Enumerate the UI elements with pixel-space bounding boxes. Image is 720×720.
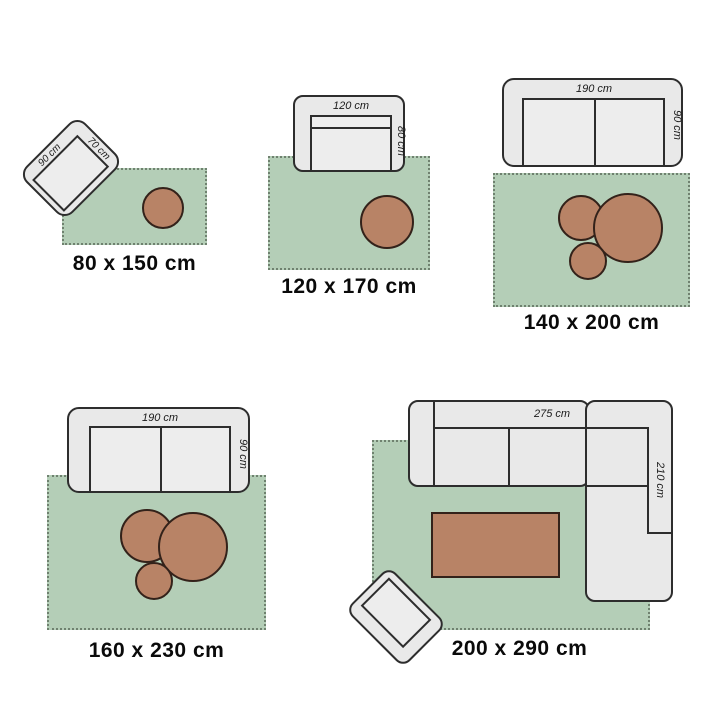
rug-size-label: 200 x 290 cm	[432, 636, 607, 662]
rug-size-label: 140 x 200 cm	[493, 310, 690, 336]
round-table-small	[135, 562, 173, 600]
rug-size-label: 80 x 150 cm	[62, 251, 207, 277]
seat-divider-line	[160, 426, 162, 493]
sofa-seat	[89, 426, 231, 491]
rug-size-guide: 70 cm 90 cm 80 x 150 cm 120 cm 80 cm 120…	[0, 0, 720, 720]
backrest-end-line	[647, 532, 673, 534]
dimension-label: 210 cm	[654, 462, 666, 498]
seat-boundary-line	[585, 485, 649, 487]
coffee-table	[431, 512, 560, 578]
rug-size-label: 160 x 230 cm	[47, 638, 266, 664]
seat-divider-line	[508, 427, 510, 487]
armrest-line	[433, 400, 435, 487]
loveseat-top-view: 120 cm 80 cm	[293, 95, 405, 172]
side-table	[360, 195, 414, 249]
dimension-label: 90 cm	[671, 110, 683, 140]
corner-sofa-chaise-section	[585, 400, 673, 602]
sofa-seat	[522, 98, 665, 165]
rug-size-label: 120 x 170 cm	[268, 274, 430, 300]
seat-divider-line	[594, 98, 596, 167]
sofa-top-view: 190 cm 90 cm	[67, 407, 250, 493]
seat-back-line	[433, 427, 590, 429]
dimension-label: 190 cm	[576, 83, 612, 95]
sofa-top-view: 190 cm 90 cm	[502, 78, 683, 167]
dimension-label: 275 cm	[534, 408, 570, 420]
side-table	[142, 187, 184, 229]
sofa-seat	[310, 115, 392, 170]
dimension-label: 120 cm	[333, 100, 369, 112]
seat-back-line	[585, 427, 649, 429]
round-table-small	[569, 242, 607, 280]
cushion-line	[310, 127, 392, 129]
dimension-label: 80 cm	[395, 126, 407, 156]
dimension-label: 190 cm	[142, 412, 178, 424]
backrest-line	[647, 427, 649, 534]
dimension-label: 90 cm	[237, 439, 249, 469]
